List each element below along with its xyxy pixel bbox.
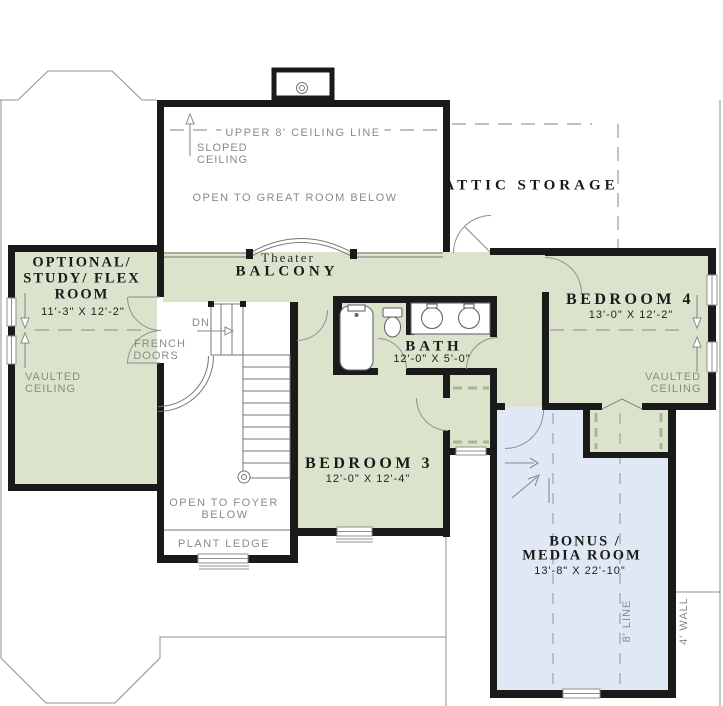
sink-left <box>422 308 443 329</box>
sink-left-faucet <box>427 304 437 308</box>
french-doors-label-1: FRENCH <box>134 338 186 350</box>
bedroom3-dims: 12'-0" X 12'-4" <box>326 473 411 485</box>
sink-right-faucet <box>464 304 474 308</box>
balcony-fill <box>163 252 548 302</box>
attic-storage-label: ATTIC STORAGE <box>443 178 618 195</box>
four-ft-wall-label: 4' WALL <box>678 597 690 645</box>
flex-room-name-2: STUDY/ FLEX <box>23 271 140 288</box>
balcony-label: BALCONY <box>235 264 338 281</box>
bedroom4-vaulted-label-2: CEILING <box>650 383 701 395</box>
open-foyer-label-2: BELOW <box>201 509 248 521</box>
flex-vaulted-label-2: CEILING <box>25 383 76 395</box>
flex-room-dims: 11'-3" X 12'-2" <box>41 306 125 318</box>
toilet-tank <box>383 308 402 317</box>
open-foyer-label-1: OPEN TO FOYER <box>169 497 279 509</box>
closet-b-fill <box>590 408 670 456</box>
plan-drawing <box>0 0 723 706</box>
sink-right <box>459 308 480 329</box>
bedroom4-dims: 13'-0" X 12'-2" <box>589 309 674 321</box>
floor-plan: UPPER 8' CEILING LINE SLOPED CEILING OPE… <box>0 0 723 706</box>
flex-room-name-3: ROOM <box>55 287 110 304</box>
tub-faucet <box>348 305 365 311</box>
flex-room-name-1: OPTIONAL/ <box>32 255 131 272</box>
plant-ledge-label: PLANT LEDGE <box>178 538 270 550</box>
eight-ft-line-label: 8' LINE <box>621 600 633 643</box>
upper-ceiling-line-label: UPPER 8' CEILING LINE <box>221 127 384 139</box>
toilet-bowl <box>385 317 401 337</box>
bath-dims: 12'-0" X 5'-0" <box>393 353 470 365</box>
dn-label: DN <box>192 317 210 329</box>
sloped-ceiling-label-1: SLOPED <box>197 142 248 154</box>
open-great-room-label: OPEN TO GREAT ROOM BELOW <box>192 192 397 204</box>
flex-vaulted-label-1: VAULTED <box>25 371 81 383</box>
french-doors-label-2: DOORS <box>133 350 178 362</box>
bedroom4-label: BEDROOM 4 <box>566 291 694 309</box>
sloped-ceiling-label-2: CEILING <box>197 154 248 166</box>
chimney <box>274 70 332 98</box>
bedroom4-vaulted-label-1: VAULTED <box>645 371 701 383</box>
bonus-room-dims: 13'-8" X 22'-10" <box>534 565 626 577</box>
bedroom3-label: BEDROOM 3 <box>305 455 433 473</box>
bonus-room-name-2: MEDIA ROOM <box>522 548 641 565</box>
